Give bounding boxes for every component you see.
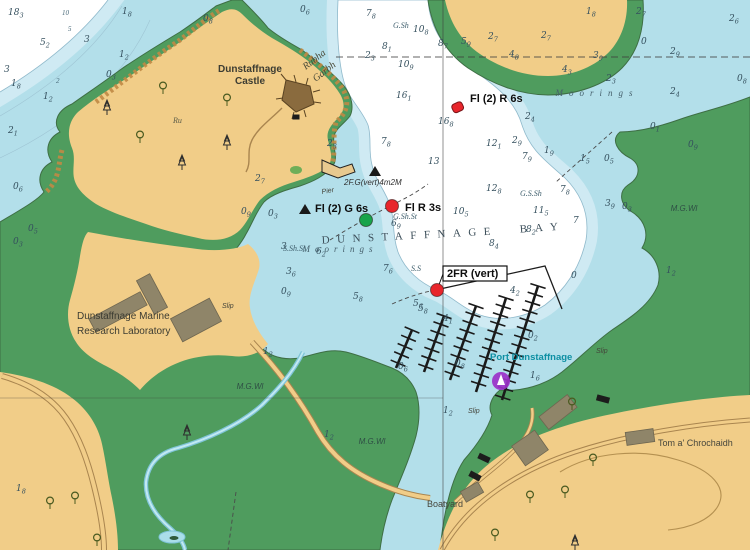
nautical-chart: 1831852312318031221060806781088123109161… <box>0 0 750 550</box>
light-label: Fl (2) G 6s <box>315 203 368 215</box>
map-label: M.G.Wl <box>671 204 698 213</box>
building-black <box>293 115 300 120</box>
map-label: Dunstaffnage Marine <box>77 311 170 322</box>
map-label: 5 <box>68 25 72 33</box>
depth-sounding: 3 <box>4 65 10 75</box>
map-label: 10 <box>62 9 70 17</box>
light-label: 2FR (vert) <box>447 268 499 280</box>
depth-sounding: 13 <box>428 157 440 167</box>
yacht-harbour-symbol <box>492 372 510 390</box>
map-label: Boatyard <box>427 499 463 509</box>
map-label: Ru <box>172 116 182 125</box>
map-label: M.G.Wl <box>359 437 386 446</box>
map-label: M.G.Wl <box>237 382 264 391</box>
map-label: S.S <box>411 264 421 273</box>
map-label: Slip <box>222 303 234 310</box>
light-label: Fl (2) R 6s <box>470 93 523 105</box>
depth-sounding: 0 <box>571 271 577 281</box>
map-label: Dunstaffnage <box>218 64 282 75</box>
map-label: G.S.Sh <box>520 189 542 198</box>
map-label: Castle <box>235 76 265 87</box>
depth-sounding: 3 <box>84 35 90 45</box>
map-label: Tom a' Chrochaidh <box>658 438 733 448</box>
depth-sounding: 7 <box>573 216 579 226</box>
map-label: 2 <box>56 77 60 85</box>
buoy-light-symbol <box>386 200 399 213</box>
buoy-light-symbol <box>360 214 373 227</box>
map-label: Slip <box>596 348 608 355</box>
map-label: S.Sh.St <box>283 244 306 253</box>
map-label: Research Laboratory <box>77 326 170 337</box>
chart-canvas: 1831852312318031221060806781088123109161… <box>0 0 750 550</box>
map-label: Slip <box>468 408 480 415</box>
depth-sounding: 0 <box>641 37 647 47</box>
map-label: Moorings <box>554 88 638 98</box>
light-label: Fl R 3s <box>405 202 441 214</box>
buoy-light-symbol <box>431 284 444 297</box>
map-label: G.Sh <box>393 21 409 30</box>
map-label: 2F.G(vert)4m2M <box>343 178 402 187</box>
map-label: Port Dunstaffnage <box>490 352 572 363</box>
